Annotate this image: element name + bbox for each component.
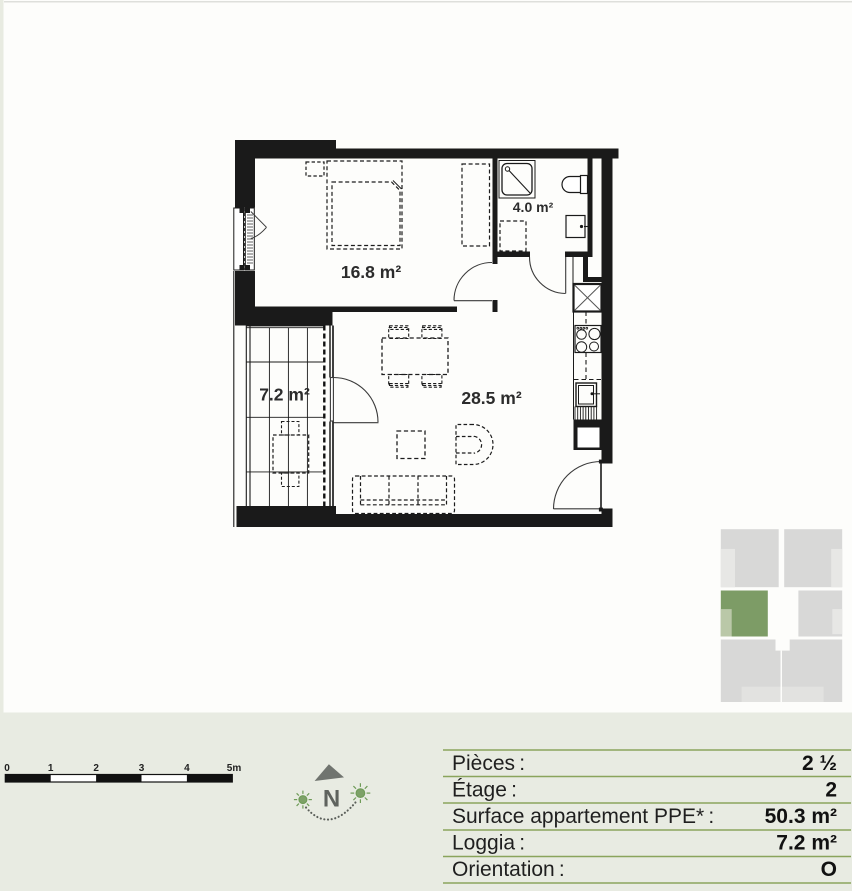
svg-text:N: N — [323, 786, 340, 813]
svg-text:Pièces :: Pièces : — [452, 752, 525, 775]
svg-text:7.2 m²: 7.2 m² — [259, 385, 310, 405]
svg-text:2: 2 — [825, 779, 837, 802]
svg-text:3: 3 — [139, 763, 145, 774]
svg-text:7.2 m²: 7.2 m² — [776, 832, 837, 855]
svg-text:4.0 m²: 4.0 m² — [513, 199, 554, 215]
svg-text:16.8 m²: 16.8 m² — [341, 262, 401, 282]
svg-text:28.5 m²: 28.5 m² — [461, 388, 521, 408]
svg-text:Étage :: Étage : — [452, 779, 517, 802]
svg-text:2: 2 — [93, 763, 99, 774]
svg-text:Orientation :: Orientation : — [452, 858, 565, 881]
svg-text:1: 1 — [48, 763, 54, 774]
svg-text:0: 0 — [4, 763, 10, 774]
svg-text:Surface appartement PPE* :: Surface appartement PPE* : — [452, 805, 714, 828]
svg-text:4: 4 — [184, 763, 190, 774]
svg-text:2 ½: 2 ½ — [802, 752, 837, 775]
svg-text:O: O — [821, 858, 837, 881]
svg-text:5m: 5m — [227, 763, 242, 774]
svg-text:50.3 m²: 50.3 m² — [765, 805, 837, 828]
svg-text:Loggia :: Loggia : — [452, 832, 525, 855]
